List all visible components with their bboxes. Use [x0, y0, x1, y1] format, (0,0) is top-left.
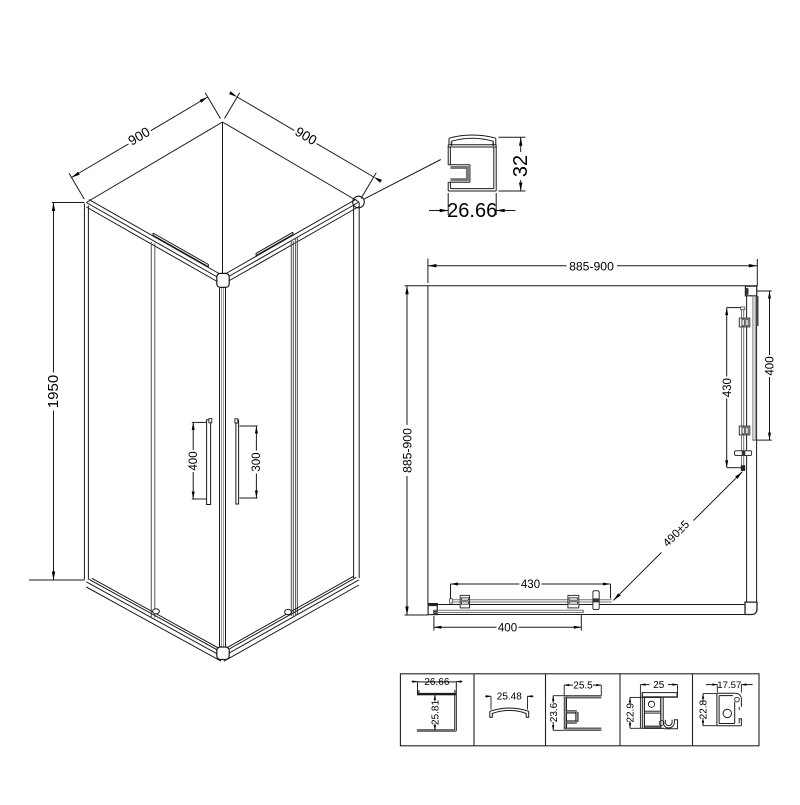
svg-text:26.66: 26.66 [424, 677, 449, 688]
svg-text:32: 32 [510, 155, 532, 177]
svg-text:400: 400 [188, 451, 200, 470]
svg-text:17.57: 17.57 [717, 680, 741, 691]
svg-text:22.8: 22.8 [699, 699, 710, 719]
svg-text:400: 400 [765, 356, 777, 375]
svg-text:885-900: 885-900 [569, 259, 614, 273]
svg-text:430: 430 [722, 378, 734, 397]
svg-text:1950: 1950 [45, 375, 62, 408]
svg-text:22.9: 22.9 [626, 703, 637, 723]
svg-text:885-900: 885-900 [400, 428, 414, 473]
svg-text:23.6: 23.6 [549, 702, 560, 722]
svg-text:25.5: 25.5 [573, 681, 593, 692]
svg-text:25: 25 [653, 680, 665, 691]
svg-text:25.48: 25.48 [497, 692, 522, 703]
svg-text:400: 400 [498, 623, 517, 635]
svg-text:26.66: 26.66 [447, 200, 497, 222]
svg-text:300: 300 [251, 452, 263, 471]
svg-text:430: 430 [521, 579, 540, 591]
svg-text:25.81: 25.81 [431, 700, 442, 725]
